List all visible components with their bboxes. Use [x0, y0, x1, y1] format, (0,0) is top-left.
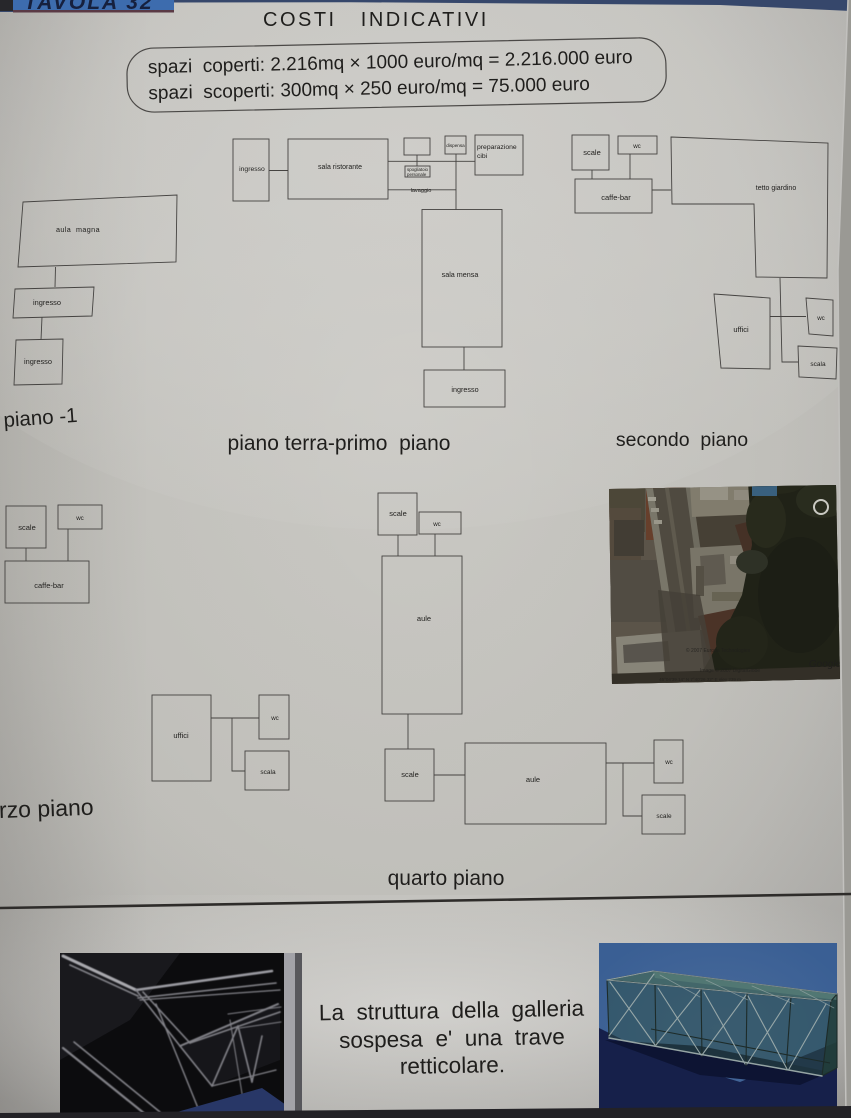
svg-text:La struttura della galleria: La struttura della galleria	[319, 996, 585, 1026]
svg-text:lavaggio: lavaggio	[411, 188, 432, 194]
svg-text:ingresso: ingresso	[451, 385, 478, 394]
svg-text:scale: scale	[18, 523, 36, 532]
svg-text:personale: personale	[407, 172, 427, 177]
svg-text:wc: wc	[432, 521, 441, 528]
svg-text:aula magna: aula magna	[56, 225, 100, 234]
svg-text:scale: scale	[401, 770, 419, 779]
svg-text:wc: wc	[75, 515, 84, 522]
svg-text:© 2007 Europa Technologies: © 2007 Europa Technologies	[686, 647, 751, 654]
svg-text:ingresso: ingresso	[239, 166, 265, 173]
svg-text:aule: aule	[526, 775, 540, 784]
svg-text:wc: wc	[270, 715, 279, 722]
svg-text:dispensa: dispensa	[446, 143, 465, 148]
svg-text:sospesa e' una trave: sospesa e' una trave	[339, 1024, 565, 1053]
svg-text:TAVOLA 32: TAVOLA 32	[24, 0, 154, 14]
svg-text:aule: aule	[417, 614, 431, 623]
svg-text:preparazione: preparazione	[477, 144, 517, 151]
svg-text:uffici: uffici	[733, 325, 749, 334]
svg-text:COSTI INDICATIVI: COSTI INDICATIVI	[263, 9, 489, 31]
svg-text:uffici: uffici	[173, 731, 189, 740]
svg-text:retticolare.: retticolare.	[400, 1052, 505, 1079]
svg-text:piano terra-primo piano: piano terra-primo piano	[228, 432, 451, 455]
svg-text:scale: scale	[389, 509, 407, 518]
svg-text:ingresso: ingresso	[33, 298, 61, 307]
svg-text:wc: wc	[664, 759, 673, 766]
svg-text:tetto giardino: tetto giardino	[756, 185, 797, 192]
svg-text:scala: scala	[260, 769, 276, 776]
svg-text:45°04'39.14" N 7°40'26.32" E: 45°04'39.14" N 7°40'26.32" E elev 239 m	[659, 677, 741, 682]
svg-text:ingresso: ingresso	[24, 357, 52, 366]
svg-text:scala: scala	[810, 361, 826, 368]
svg-text:quarto piano: quarto piano	[388, 867, 505, 890]
svg-text:sala ristorante: sala ristorante	[318, 164, 362, 171]
svg-text:Google: Google	[809, 659, 842, 670]
svg-text:wc: wc	[632, 143, 641, 150]
svg-text:caffe-bar: caffe-bar	[34, 581, 64, 590]
svg-text:secondo piano: secondo piano	[616, 429, 748, 451]
svg-text:caffe-bar: caffe-bar	[601, 193, 631, 202]
svg-text:Image © 2007 DigitalGlobe: Image © 2007 DigitalGlobe	[700, 667, 760, 674]
svg-text:scale: scale	[583, 148, 601, 157]
svg-text:sala mensa: sala mensa	[442, 270, 479, 279]
svg-text:terzo piano: terzo piano	[0, 794, 94, 824]
svg-text:wc: wc	[816, 315, 825, 322]
svg-text:scale: scale	[656, 813, 672, 820]
svg-text:cibi: cibi	[477, 153, 488, 160]
